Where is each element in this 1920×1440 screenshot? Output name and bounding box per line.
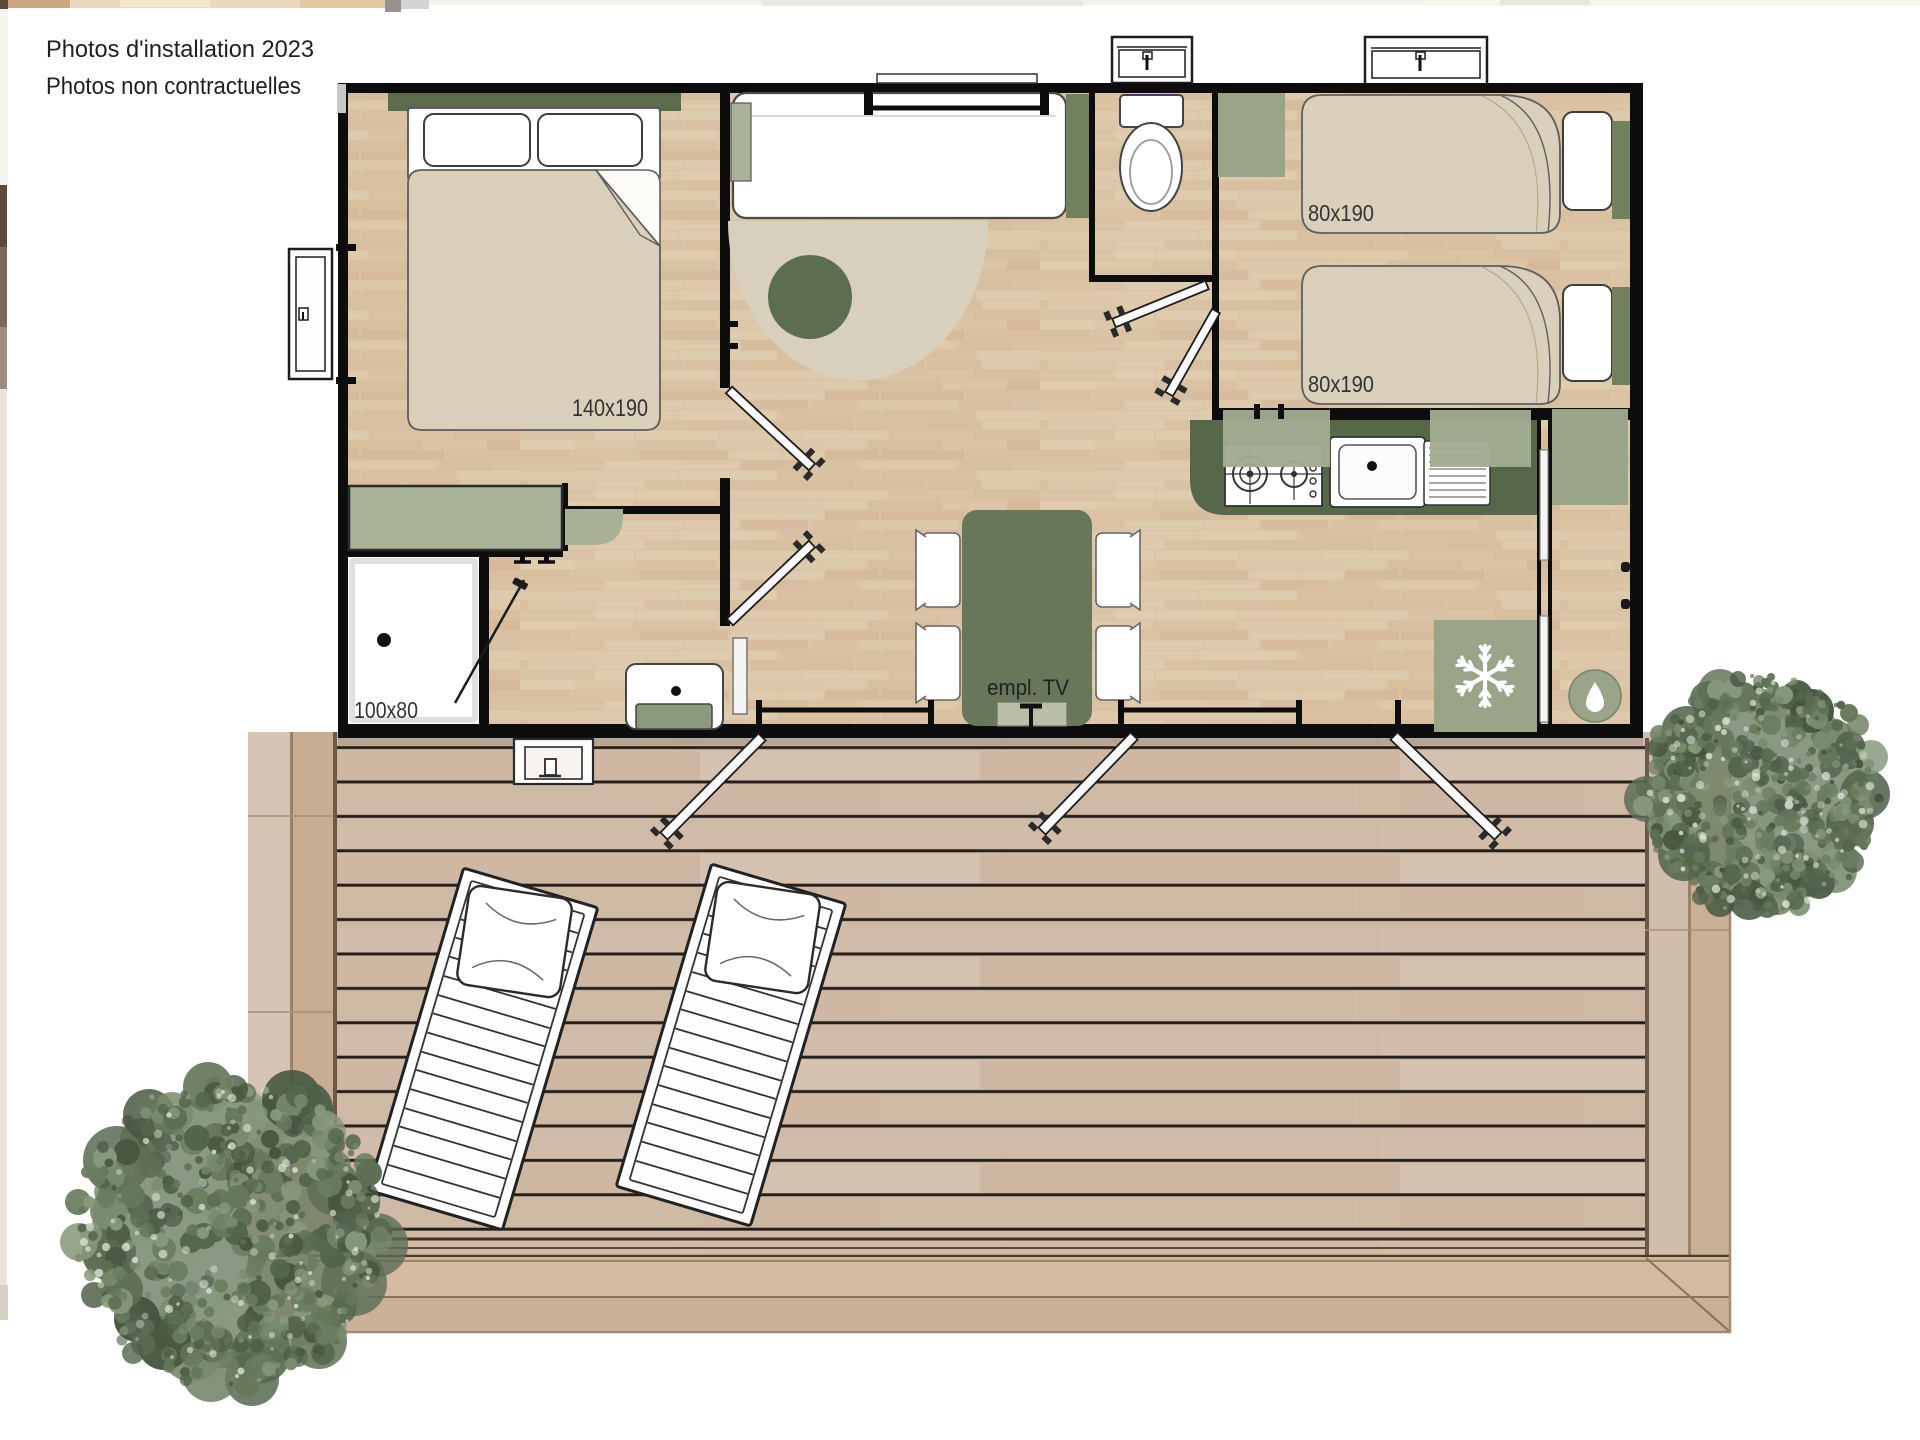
svg-text:140x190: 140x190 — [572, 395, 648, 422]
svg-text:80x190: 80x190 — [1308, 371, 1374, 397]
svg-text:empl. TV: empl. TV — [987, 675, 1069, 700]
svg-text:80x190: 80x190 — [1308, 200, 1374, 226]
svg-text:100x80: 100x80 — [354, 697, 418, 723]
svg-text:Photos d'installation 2023: Photos d'installation 2023 — [46, 36, 314, 63]
svg-text:Photos non contractuelles: Photos non contractuelles — [46, 73, 301, 100]
